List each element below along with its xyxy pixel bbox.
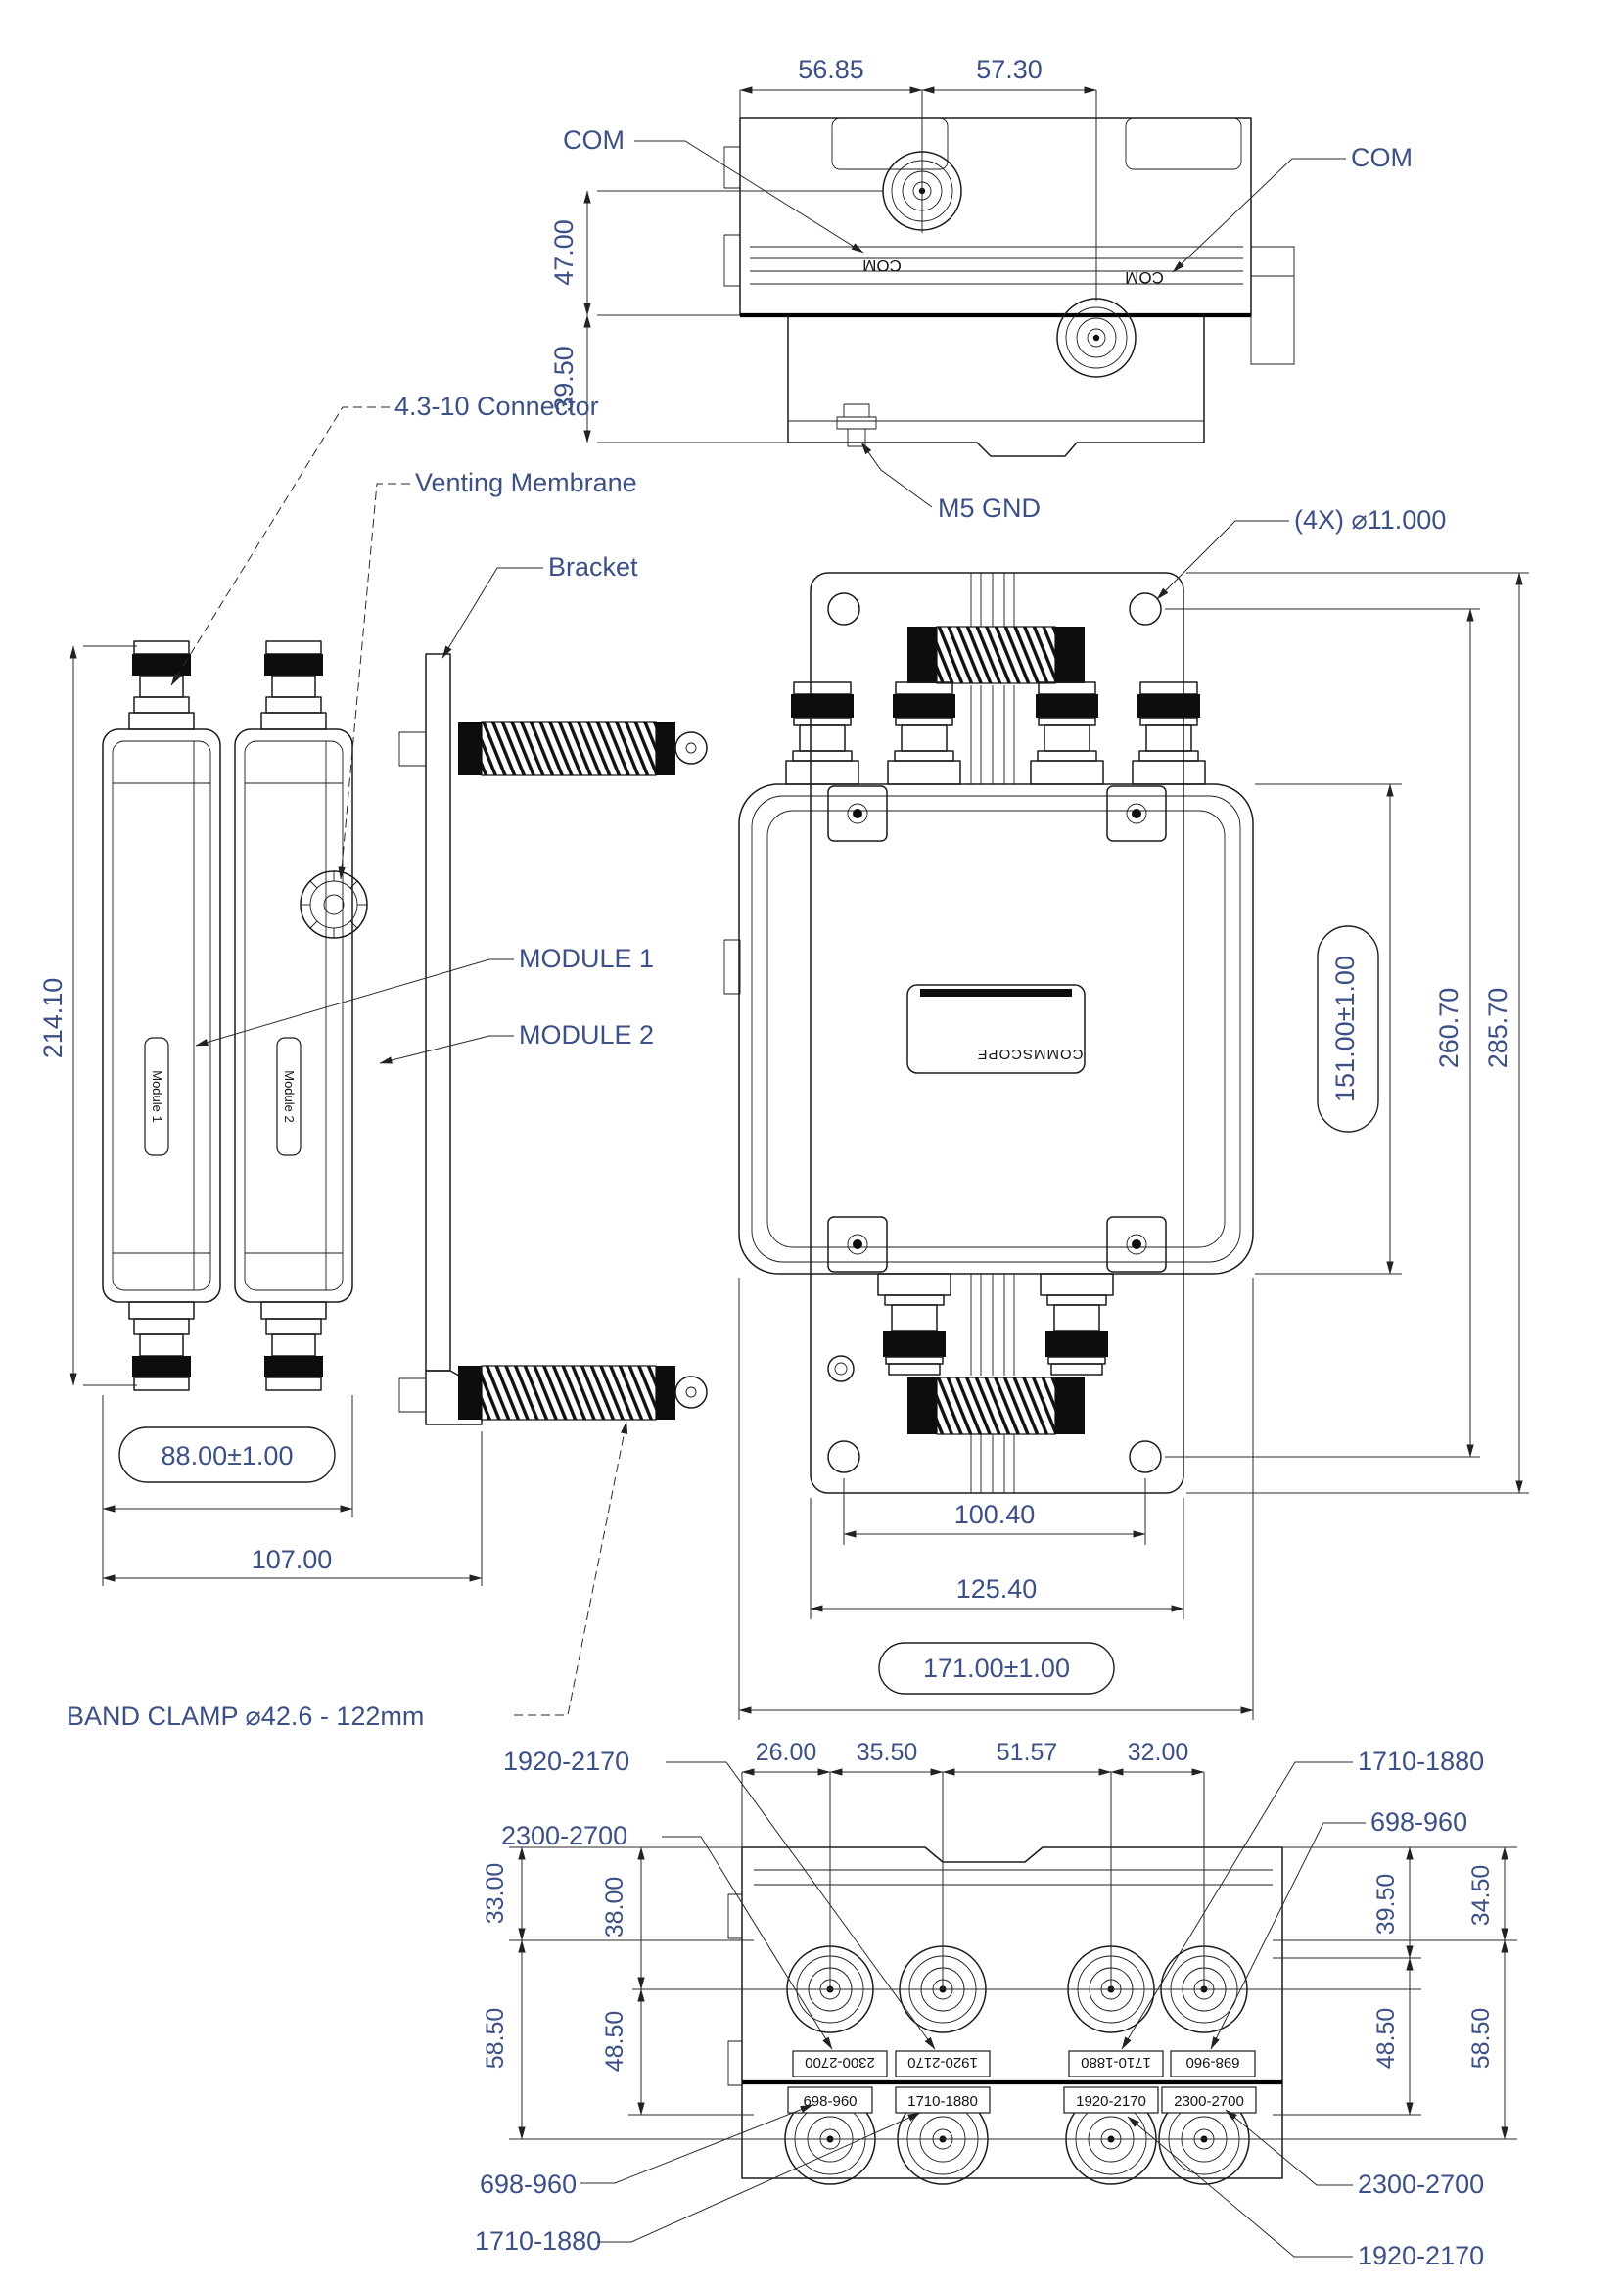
top-view-com-port-2	[1057, 299, 1136, 377]
module-1-body	[103, 729, 220, 1302]
port-band-label: 698-960	[803, 2093, 857, 2110]
module-2-body	[235, 729, 352, 1302]
dim-32-00: 32.00	[1128, 1739, 1189, 1766]
dim-58-50-right: 58.50	[1467, 2008, 1495, 2070]
corner-boss	[828, 1217, 887, 1272]
dim-214-10: 214.10	[38, 978, 68, 1059]
module-2-label: Module 2	[282, 1070, 297, 1122]
port-band-label: 698-960	[1185, 2054, 1239, 2071]
com-marking-left: COM	[862, 257, 902, 275]
dim-285-70: 285.70	[1483, 988, 1512, 1069]
dim-34-50: 34.50	[1467, 1865, 1495, 1927]
callout-module-2: MODULE 2	[519, 1020, 654, 1050]
top-view: COM COM 56.85 57.30 47.00 39.50 COM COM …	[549, 55, 1413, 523]
front-top-connectors	[786, 682, 1205, 784]
callout-com-left: COM	[563, 125, 625, 155]
dim-39-50: 39.50	[1372, 1874, 1400, 1936]
module-1-top-connector	[129, 641, 194, 729]
module-1-bottom-connector	[129, 1302, 194, 1390]
dim-125-40: 125.40	[956, 1574, 1038, 1604]
callout-venting-membrane: Venting Membrane	[415, 468, 637, 497]
callout-com-right: COM	[1351, 143, 1413, 172]
port-band-label: 2300-2700	[1174, 2093, 1244, 2110]
port-band-label: 2300-2700	[805, 2054, 875, 2071]
port-band-label: 1710-1880	[907, 2093, 978, 2110]
side-view: Module 1 Module 2 214.10	[38, 392, 707, 1731]
mounting-hole-top-right	[1130, 593, 1161, 625]
callout-1920-2170-br: 1920-2170	[1358, 2241, 1484, 2270]
front-body: COMMSCOPE	[724, 784, 1253, 1274]
callout-module-1: MODULE 1	[519, 944, 654, 973]
band-clamp-screw-top	[458, 722, 707, 775]
front-band-clamp-top	[907, 627, 1085, 683]
callout-698-960-tr: 698-960	[1370, 1807, 1467, 1837]
port-band-labels-top: 2300-2700 1920-2170 1710-1880 698-960	[793, 2051, 1255, 2077]
dim-48-50-right: 48.50	[1372, 2008, 1400, 2070]
m5-ground-bolt	[837, 404, 876, 446]
dim-151-00: 151.00±1.00	[1330, 956, 1360, 1102]
port-band-label: 1920-2170	[1076, 2093, 1146, 2110]
drawing-sheet: COM COM 56.85 57.30 47.00 39.50 COM COM …	[0, 0, 1624, 2287]
module-2-bottom-connector	[261, 1302, 326, 1390]
engineering-drawing: COM COM 56.85 57.30 47.00 39.50 COM COM …	[0, 0, 1624, 2287]
dim-100-40: 100.40	[954, 1500, 1036, 1529]
dim-33-00: 33.00	[482, 1863, 509, 1925]
callout-1920-2170-tl: 1920-2170	[503, 1747, 629, 1776]
callout-band-clamp: BAND CLAMP ⌀42.6 - 122mm	[67, 1702, 424, 1731]
mounting-hole-bottom-right	[1130, 1441, 1161, 1472]
dim-260-70: 260.70	[1434, 988, 1463, 1069]
port-band-labels-bottom: 698-960 1710-1880 1920-2170 2300-2700	[788, 2087, 1256, 2113]
port-band-label: 1710-1880	[1081, 2054, 1151, 2071]
callout-m5-gnd: M5 GND	[938, 493, 1041, 523]
bottom-view: 2300-2700 1920-2170 1710-1880 698-960 69…	[475, 1739, 1517, 2270]
dim-48-50-left: 48.50	[601, 2011, 628, 2073]
front-view: COMMSCOPE (4X) ⌀11.000 151.00±1.00 260.7…	[724, 505, 1529, 1720]
corner-boss	[1107, 1217, 1166, 1272]
front-bottom-connectors	[878, 1274, 1113, 1375]
dim-56-85: 56.85	[798, 55, 864, 84]
callout-1710-1880-tr: 1710-1880	[1358, 1747, 1484, 1776]
dim-171-00: 171.00±1.00	[923, 1654, 1070, 1683]
callout-2300-2700-tl: 2300-2700	[501, 1821, 627, 1850]
dim-51-57: 51.57	[997, 1739, 1058, 1766]
module-1-label: Module 1	[150, 1070, 164, 1122]
mounting-hole-top-left	[828, 593, 859, 625]
callout-bracket: Bracket	[548, 552, 638, 582]
front-band-clamp-bottom	[907, 1377, 1085, 1434]
callout-4x-holes: (4X) ⌀11.000	[1294, 505, 1446, 535]
band-clamp-screw-bottom	[458, 1366, 707, 1420]
dim-88-00: 88.00±1.00	[162, 1441, 294, 1470]
mounting-plate	[811, 573, 1183, 1493]
dim-107-00: 107.00	[252, 1545, 333, 1574]
dim-58-50-left: 58.50	[482, 2008, 509, 2070]
brand-label: COMMSCOPE	[976, 1046, 1083, 1062]
port-band-label: 1920-2170	[907, 2054, 978, 2071]
dim-38-00: 38.00	[601, 1877, 628, 1938]
ground-point	[828, 1356, 854, 1381]
callout-698-960-bl: 698-960	[480, 2170, 577, 2199]
mounting-hole-bottom-left	[828, 1441, 859, 1472]
venting-membrane-knob	[301, 871, 367, 938]
module-2-top-connector	[261, 641, 326, 729]
dim-35-50: 35.50	[857, 1739, 918, 1766]
dim-47-00: 47.00	[549, 219, 579, 286]
callout-1710-1880-bl: 1710-1880	[475, 2226, 601, 2256]
callout-4310-connector: 4.3-10 Connector	[394, 392, 599, 421]
pole-mast-lines	[971, 573, 1014, 1493]
dim-26-00: 26.00	[756, 1739, 817, 1766]
com-marking-right: COM	[1125, 268, 1164, 287]
callout-2300-2700-br: 2300-2700	[1358, 2170, 1484, 2199]
dim-57-30: 57.30	[976, 55, 1043, 84]
corner-boss	[1107, 786, 1166, 841]
corner-boss	[828, 786, 887, 841]
